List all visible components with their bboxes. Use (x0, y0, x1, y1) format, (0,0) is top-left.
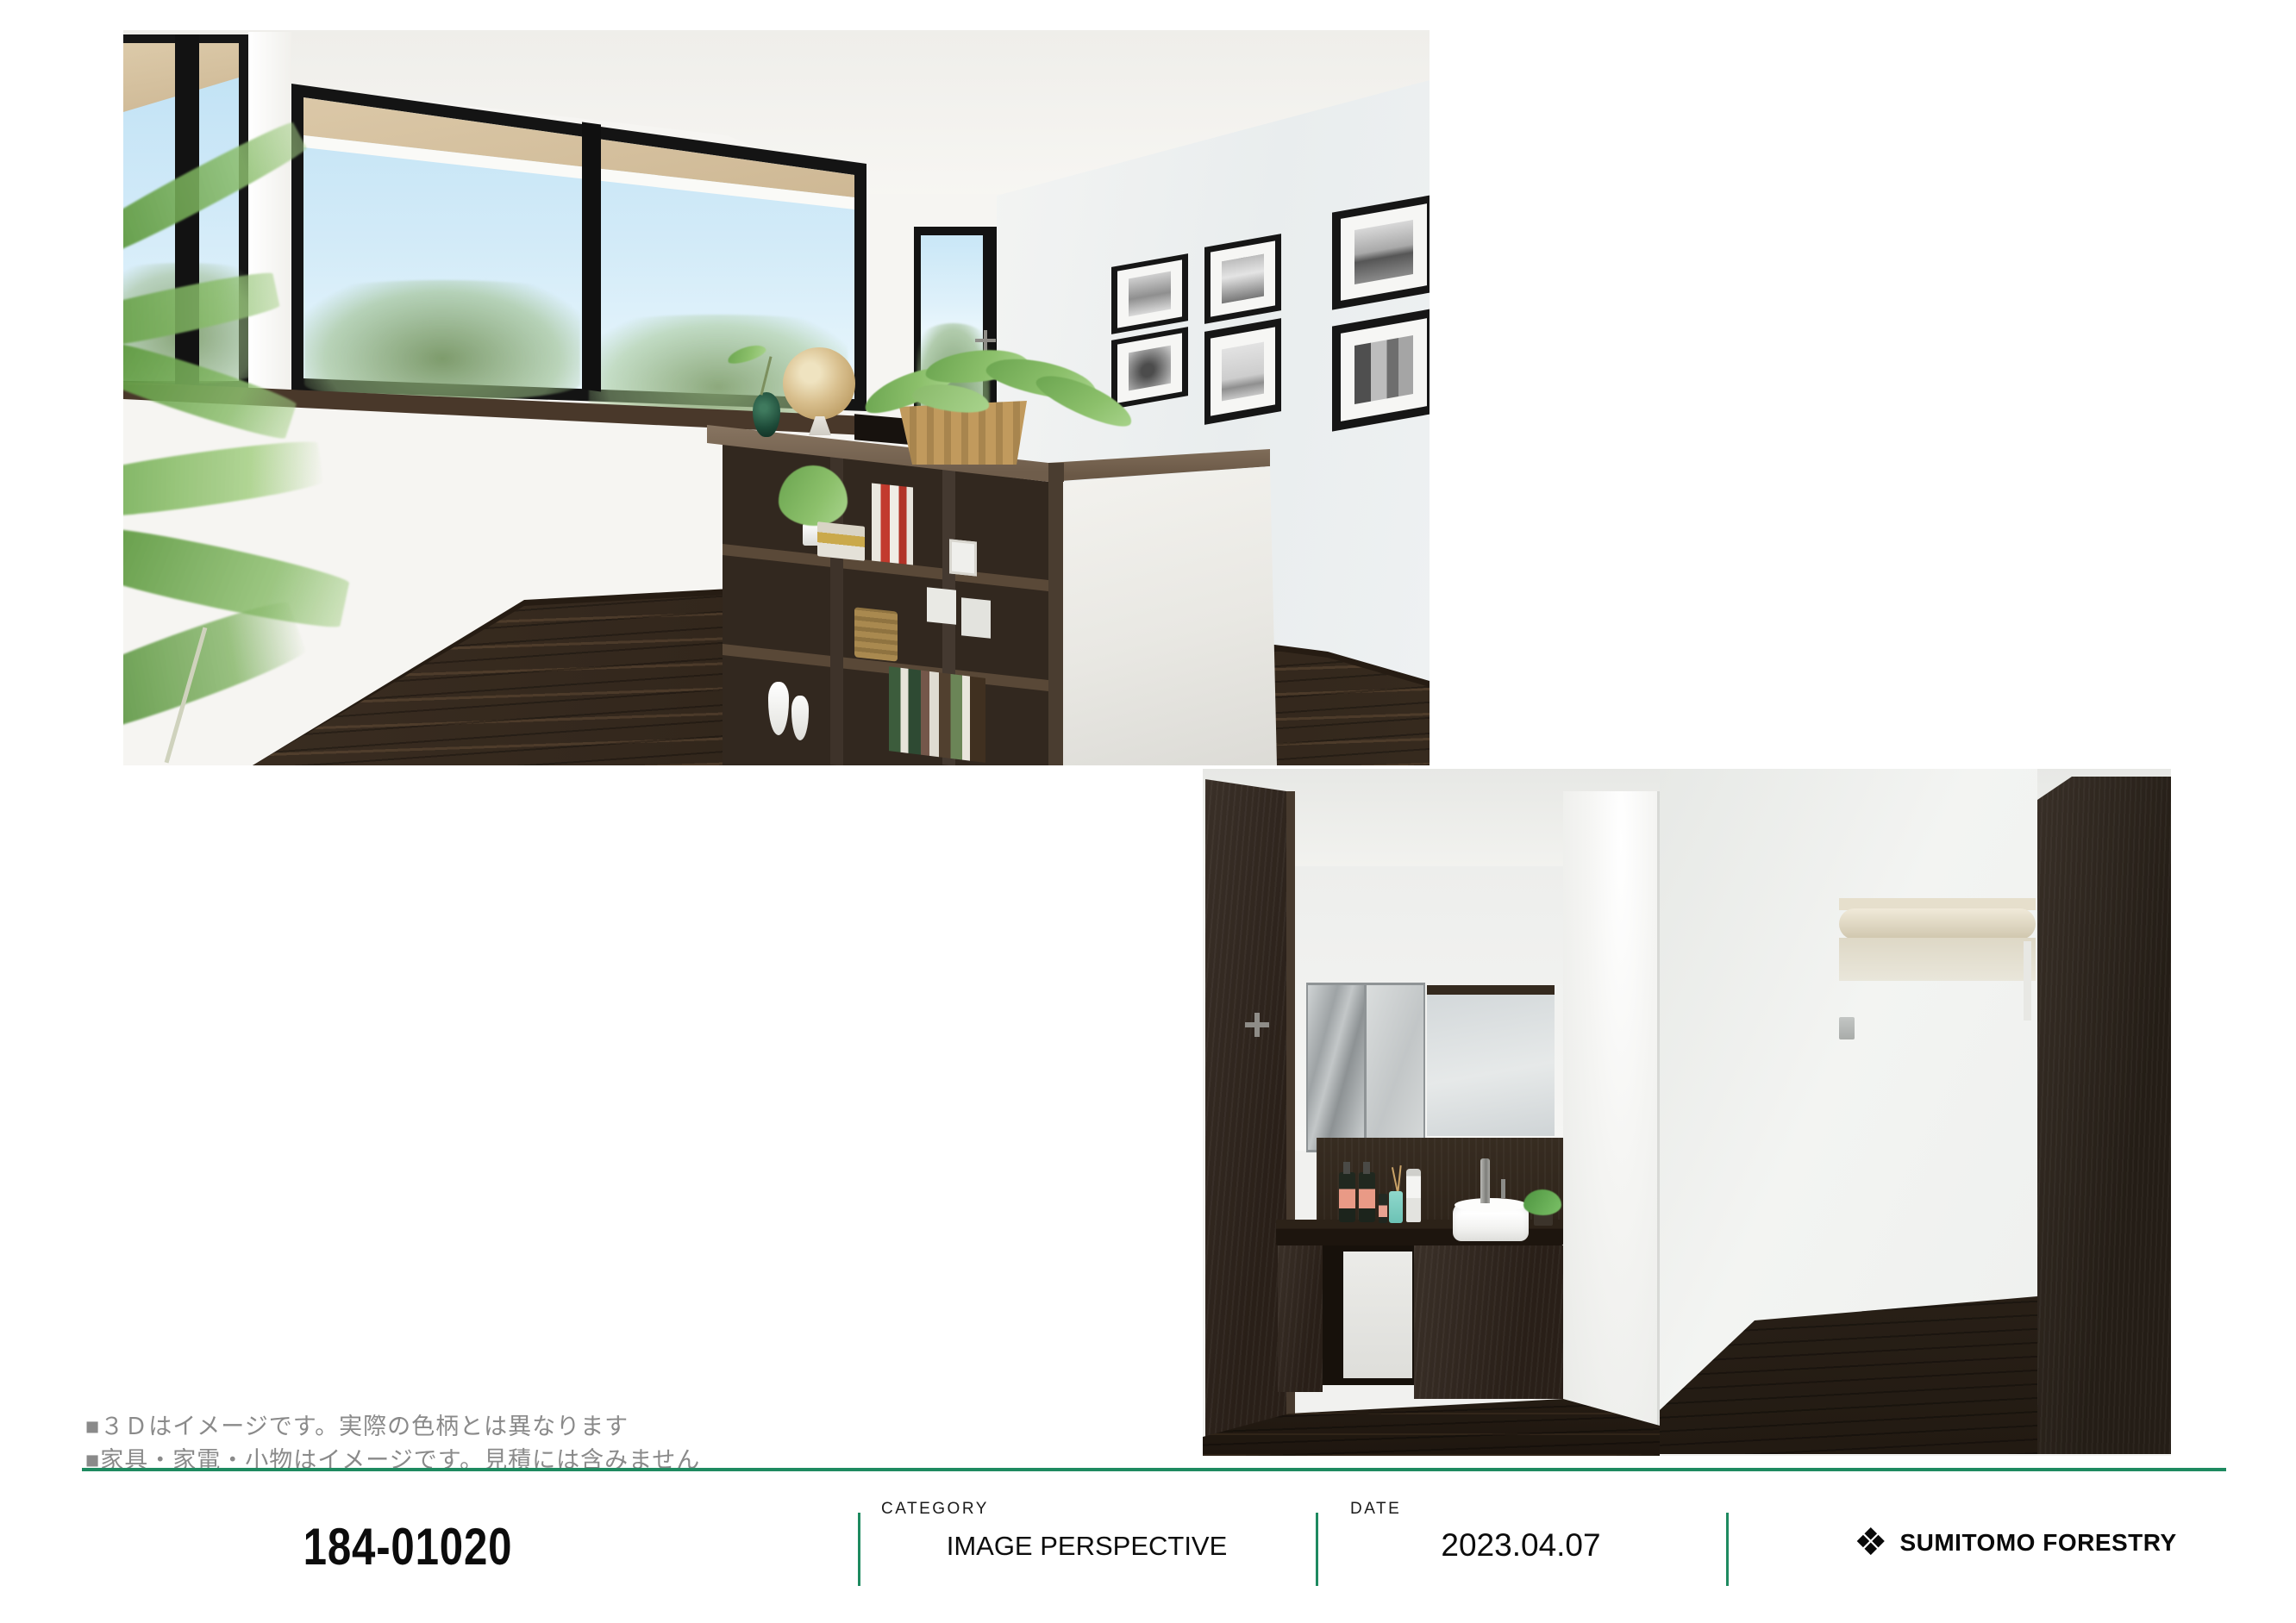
date-value: 2023.04.07 (1316, 1527, 1726, 1564)
faucet (1480, 1158, 1490, 1203)
closet-bracket (2024, 941, 2031, 1021)
brand-name: SUMITOMO FORESTRY (1899, 1529, 2176, 1557)
picture-frame (1111, 327, 1188, 409)
disclaimer-line-1: ■３Ｄはイメージです。実際の色柄とは異なります (85, 1408, 629, 1441)
closet-shelf-shadow (1839, 938, 2036, 981)
soap-pump (1343, 1162, 1350, 1174)
footer-rule (82, 1468, 2226, 1471)
picture-frame (1204, 234, 1281, 324)
book-row-bottom (889, 666, 985, 763)
wall-hook (1839, 1017, 1855, 1039)
plant-frond (123, 595, 309, 742)
partition-wall (1563, 791, 1660, 1429)
wall-corner-column (248, 32, 291, 394)
window-main-trees-1 (304, 280, 580, 401)
window-handle-icon (975, 330, 996, 351)
brand-lockup: ❖ SUMITOMO FORESTRY (1854, 1524, 2177, 1562)
spray-bottle (1379, 1194, 1387, 1223)
mirror-top-rail (1427, 985, 1555, 995)
diffuser-cup (1389, 1191, 1403, 1223)
closet-rod (1839, 908, 2036, 939)
sink-rim (1455, 1198, 1527, 1212)
counter-black-books (854, 414, 908, 444)
render-vanity-room (1203, 769, 2171, 1456)
picture-frame (1111, 253, 1188, 334)
mirror (1427, 995, 1555, 1136)
soap-bottle (1339, 1172, 1355, 1222)
storage-box (961, 597, 991, 639)
faucet-handle (1501, 1179, 1505, 1198)
book-red-group (872, 483, 913, 565)
storage-box (927, 587, 956, 625)
vanity-cabinet (1414, 1245, 1563, 1399)
counter-plant (1523, 1189, 1561, 1215)
igeta-logo-icon: ❖ (1854, 1524, 1887, 1562)
book-stack (817, 521, 865, 561)
render-study-room (123, 30, 1430, 765)
picture-frame (1332, 308, 1430, 431)
knee-space-panel (1343, 1252, 1412, 1378)
presentation-sheet: ■３Ｄはイメージです。実際の色柄とは異なります ■家具・家電・小物はイメージです… (0, 0, 2296, 1623)
vanity-pedestal (1278, 1245, 1323, 1392)
framed-photo (1129, 272, 1172, 316)
framed-photo (1222, 341, 1265, 401)
door-handle-icon (1245, 1013, 1269, 1037)
date-label: DATE (1350, 1500, 1401, 1519)
lotion-bottle (1406, 1169, 1421, 1222)
category-value: IMAGE PERSPECTIVE (858, 1531, 1316, 1562)
mirror-cabinet-door (1367, 985, 1423, 1150)
shelf-photo-frame (949, 539, 977, 576)
end-panel-shadow (1048, 463, 1064, 765)
framed-photo (1354, 335, 1412, 404)
storage-basket (854, 607, 898, 661)
category-label: CATEGORY (881, 1500, 989, 1519)
door (1205, 777, 1289, 1441)
soap-pump (1363, 1162, 1370, 1174)
framed-photo (1354, 220, 1412, 284)
end-panel (1063, 466, 1277, 765)
mirror-cabinet-door (1308, 985, 1364, 1150)
plant-frond (123, 436, 324, 522)
soap-bottle (1359, 1172, 1375, 1222)
globe-sphere (783, 347, 855, 420)
picture-frame (1204, 318, 1281, 425)
side-panel (2037, 769, 2171, 1454)
plan-number: 184-01020 (266, 1517, 549, 1576)
framed-photo (1222, 253, 1265, 304)
framed-photo (1129, 345, 1172, 391)
picture-frame (1332, 194, 1430, 309)
footer-divider (1726, 1513, 1729, 1586)
window-main-mullion (582, 122, 601, 391)
